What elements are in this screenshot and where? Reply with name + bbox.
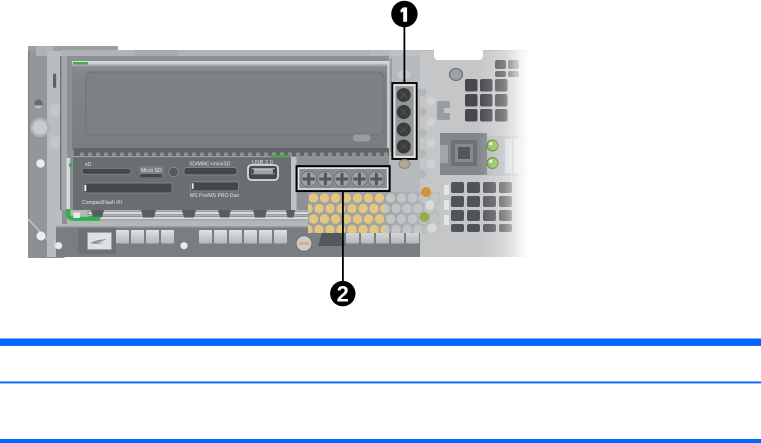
svg-text:SD/MMC+/miniSD: SD/MMC+/miniSD: [189, 162, 231, 168]
svg-text:CompactFlash I/II: CompactFlash I/II: [82, 200, 122, 206]
svg-text:2: 2: [337, 282, 349, 307]
svg-text:MS Pro/MS PRO Duo: MS Pro/MS PRO Duo: [190, 193, 239, 199]
svg-text:Micro SD: Micro SD: [141, 168, 162, 174]
svg-text:xD: xD: [85, 162, 92, 168]
